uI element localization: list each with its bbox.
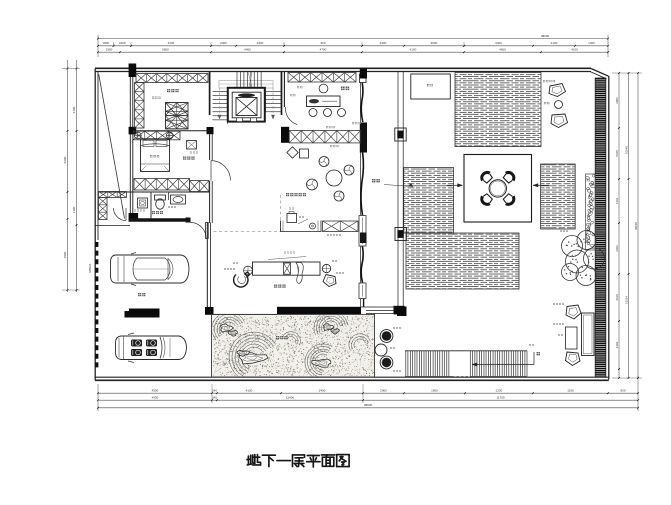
svg-text:1500: 1500 <box>106 48 113 52</box>
svg-text:4400: 4400 <box>257 41 264 45</box>
svg-text:M8021: M8021 <box>88 263 92 273</box>
svg-text:4400: 4400 <box>119 41 126 45</box>
svg-text:2200: 2200 <box>496 389 503 393</box>
svg-text:28600: 28600 <box>364 403 373 407</box>
svg-text:4100: 4100 <box>571 48 578 52</box>
svg-text:2400: 2400 <box>319 389 326 393</box>
svg-text:3000: 3000 <box>431 41 438 45</box>
svg-text:4100: 4100 <box>246 389 253 393</box>
svg-text:4400: 4400 <box>380 41 387 45</box>
svg-text:2900: 2900 <box>380 389 387 393</box>
svg-text:800: 800 <box>620 389 625 393</box>
svg-text:6200: 6200 <box>63 156 67 163</box>
svg-text:1400: 1400 <box>588 41 595 45</box>
svg-text:5468: 5468 <box>615 150 619 157</box>
svg-text:3166: 3166 <box>615 197 619 204</box>
svg-text:240: 240 <box>212 396 217 400</box>
svg-text:10640: 10640 <box>625 146 629 154</box>
svg-text:4550: 4550 <box>152 396 159 400</box>
svg-text:2402: 2402 <box>615 245 619 252</box>
svg-text:11400: 11400 <box>286 396 294 400</box>
svg-text:1400: 1400 <box>72 206 76 213</box>
svg-text:16254: 16254 <box>625 296 629 304</box>
svg-text:5600: 5600 <box>162 48 169 52</box>
svg-text:38600: 38600 <box>541 34 550 38</box>
svg-text:30910: 30910 <box>634 222 638 230</box>
svg-text:3400: 3400 <box>495 41 502 45</box>
svg-text:4400: 4400 <box>244 48 251 52</box>
svg-text:4700: 4700 <box>320 48 327 52</box>
svg-text:240: 240 <box>212 389 217 393</box>
svg-text:4600: 4600 <box>499 48 506 52</box>
svg-text:2400: 2400 <box>220 41 227 45</box>
svg-text:11700: 11700 <box>496 396 504 400</box>
svg-text:3500: 3500 <box>63 251 67 258</box>
svg-text:2100: 2100 <box>551 41 558 45</box>
svg-text:3100: 3100 <box>72 106 76 113</box>
svg-text:6100: 6100 <box>410 48 417 52</box>
svg-text:1800: 1800 <box>431 389 438 393</box>
svg-text:2402: 2402 <box>615 341 619 348</box>
svg-text:300: 300 <box>320 41 325 45</box>
svg-text:3610: 3610 <box>615 294 619 301</box>
svg-text:1190: 1190 <box>567 389 574 393</box>
svg-text:2006: 2006 <box>615 97 619 104</box>
svg-text:4550: 4550 <box>152 389 159 393</box>
svg-text:4100: 4100 <box>168 41 175 45</box>
svg-text:1800: 1800 <box>102 41 109 45</box>
